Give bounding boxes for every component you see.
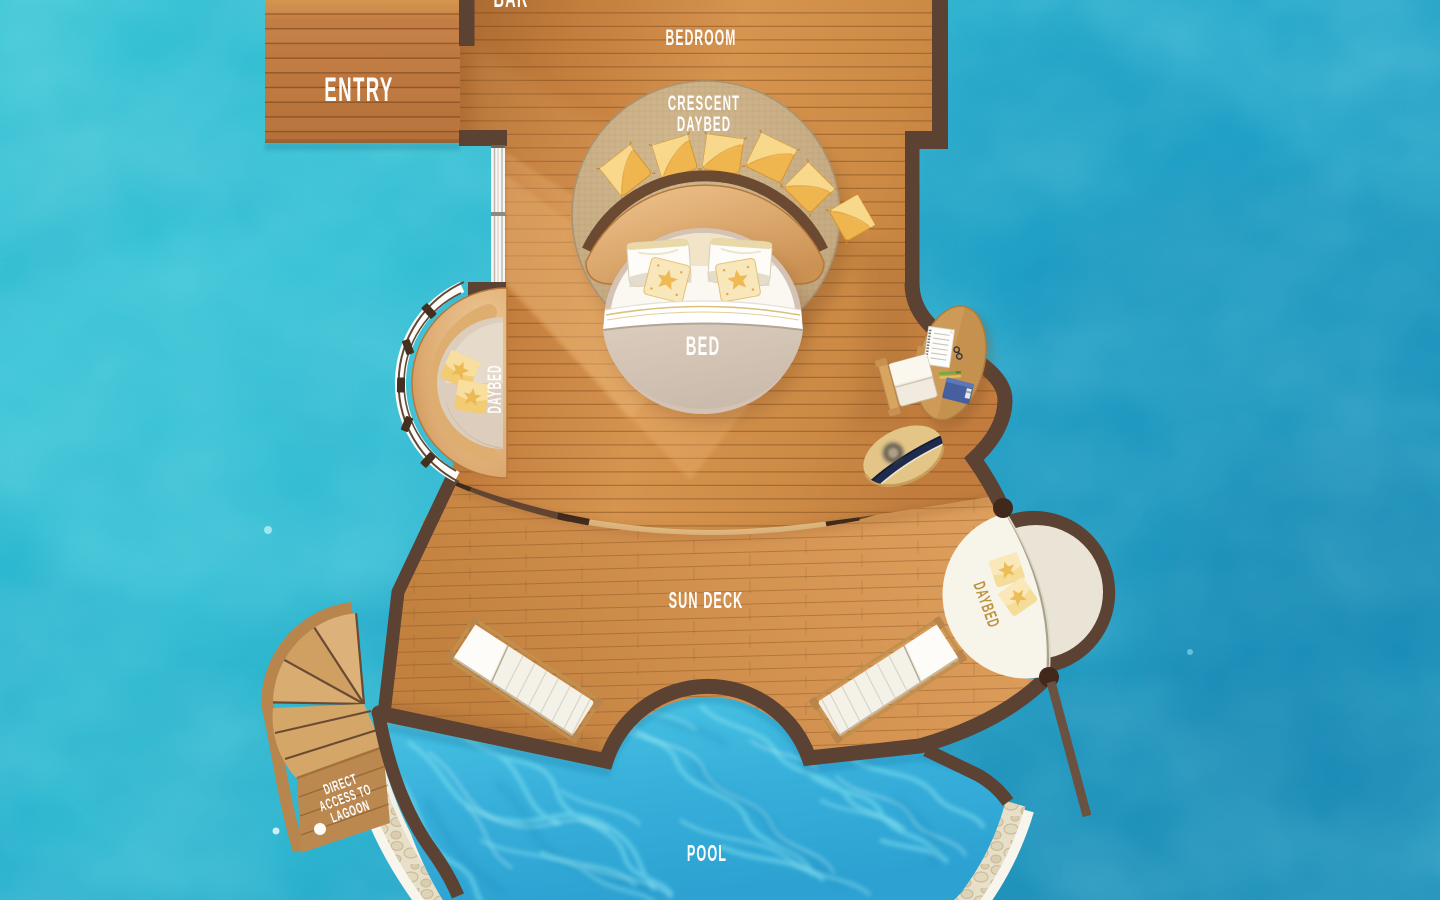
svg-text:SUN DECK: SUN DECK bbox=[669, 587, 744, 613]
svg-text:DAYBED: DAYBED bbox=[485, 364, 506, 413]
svg-text:DAYBED: DAYBED bbox=[677, 112, 731, 136]
svg-text:POOL: POOL bbox=[687, 840, 727, 866]
svg-text:BED: BED bbox=[686, 330, 721, 361]
svg-text:ENTRY: ENTRY bbox=[324, 70, 394, 108]
svg-text:BEDROOM: BEDROOM bbox=[666, 25, 737, 50]
svg-text:BAR: BAR bbox=[494, 0, 529, 13]
